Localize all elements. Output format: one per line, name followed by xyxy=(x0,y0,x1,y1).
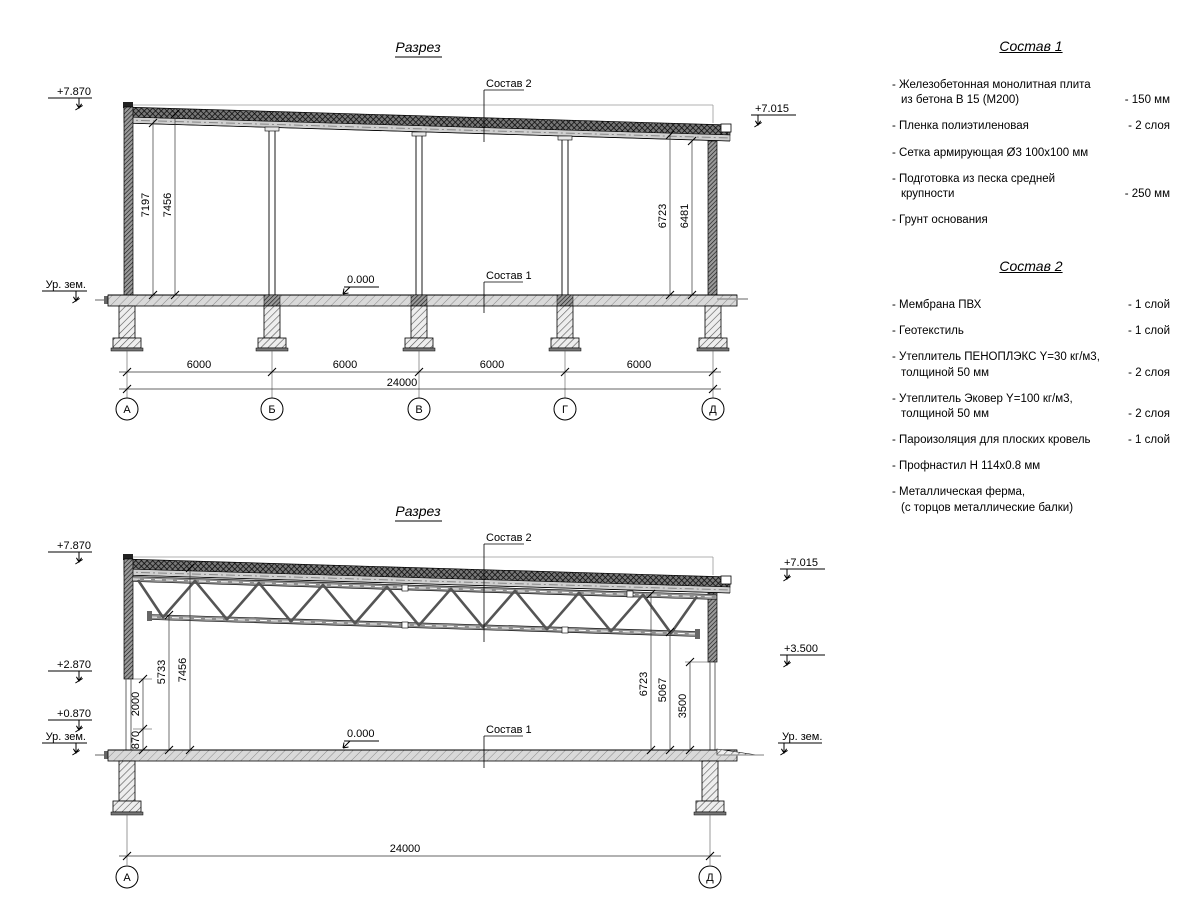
section-1: Разрез xyxy=(42,39,796,420)
total-dim: 24000 xyxy=(390,843,421,855)
callout-sostav1: Состав 1 xyxy=(486,270,532,282)
axis-label: В xyxy=(415,404,422,416)
material-name: - Пароизоляция для плоских кровель xyxy=(892,433,1091,448)
list-item: - Сетка армирующая Ø3 100х100 мм xyxy=(892,146,1170,161)
material-value: - 2 слоя xyxy=(1120,366,1170,381)
material-name: - Грунт основания xyxy=(892,213,988,228)
material-name: - Подготовка из песка средней крупности xyxy=(892,172,1055,202)
ground-level-mark: Ур. зем. xyxy=(46,279,86,291)
list-item: - Геотекстиль - 1 слой xyxy=(892,324,1170,339)
zero-level: 0.000 xyxy=(347,274,375,286)
callout-sostav2: Состав 2 xyxy=(486,78,532,90)
list-item: - Мембрана ПВХ - 1 слой xyxy=(892,298,1170,313)
composition-1-title: Состав 1 xyxy=(892,38,1170,54)
level-mark: +0.870 xyxy=(57,708,91,720)
ground-level-mark: Ур. зем. xyxy=(46,731,86,743)
material-name: - Железобетонная монолитная плита из бет… xyxy=(892,78,1091,108)
material-name: - Профнастил Н 114х0.8 мм xyxy=(892,459,1040,474)
composition-1-list: Состав 1 - Железобетонная монолитная пли… xyxy=(892,38,1170,239)
axis-markers-1: А Б В Г Д xyxy=(116,398,724,420)
level-mark: +7.870 xyxy=(57,540,91,552)
roof-end-cap xyxy=(721,124,731,132)
list-item: - Профнастил Н 114х0.8 мм xyxy=(892,459,1170,474)
callout-sostav2: Состав 2 xyxy=(486,532,532,544)
vdim: 6723 xyxy=(657,204,669,228)
drawing-sheet: Разрез xyxy=(0,0,1200,900)
dim-rows-2: 24000 xyxy=(119,843,721,860)
vdim: 7456 xyxy=(177,658,189,682)
axis-label: Д xyxy=(709,404,717,416)
section1-title: Разрез xyxy=(395,39,441,55)
list-item: - Металлическая ферма, (с торцов металли… xyxy=(892,485,1170,515)
material-name: - Металлическая ферма, (с торцов металли… xyxy=(892,485,1073,515)
vdim: 3500 xyxy=(677,694,689,718)
bay-dim: 6000 xyxy=(480,359,504,371)
material-value: - 2 слоя xyxy=(1120,407,1170,422)
zero-level: 0.000 xyxy=(347,728,375,740)
axis-markers-2: А Д xyxy=(116,866,721,888)
material-value: - 1 слой xyxy=(1120,324,1170,339)
left-wall xyxy=(124,107,133,295)
vertical-dims-2-right: 6723 5067 3500 xyxy=(638,590,710,754)
section-2: Разрез xyxy=(42,503,825,888)
roof-1 xyxy=(123,102,731,141)
foundations-1 xyxy=(111,306,729,398)
material-value: - 1 слой xyxy=(1120,433,1170,448)
list-item: - Подготовка из песка средней крупности … xyxy=(892,172,1170,202)
roof-end-cap xyxy=(721,576,731,584)
section2-title: Разрез xyxy=(395,503,441,519)
level-mark: +3.500 xyxy=(784,643,818,655)
callout-sostav1: Состав 1 xyxy=(486,724,532,736)
vdim: 6481 xyxy=(679,204,691,228)
list-item: - Пароизоляция для плоских кровель - 1 с… xyxy=(892,433,1170,448)
vdim: 870 xyxy=(130,731,142,749)
list-item: - Утеплитель Эковер Y=100 кг/м3, толщино… xyxy=(892,392,1170,422)
total-dim: 24000 xyxy=(387,377,418,389)
material-name: - Пленка полиэтиленовая xyxy=(892,119,1029,134)
list-item: - Железобетонная монолитная плита из бет… xyxy=(892,78,1170,108)
material-name: - Утеплитель Эковер Y=100 кг/м3, толщино… xyxy=(892,392,1073,422)
vdim: 5067 xyxy=(657,678,669,702)
material-name: - Геотекстиль xyxy=(892,324,966,339)
vdim: 5733 xyxy=(156,660,168,684)
composition-2-title: Состав 2 xyxy=(892,258,1170,274)
bay-dim: 6000 xyxy=(333,359,357,371)
material-name: - Мембрана ПВХ xyxy=(892,298,981,313)
vdim: 7197 xyxy=(140,193,152,217)
axis-label: А xyxy=(123,404,131,416)
bay-dim: 6000 xyxy=(187,359,211,371)
axis-label: А xyxy=(123,872,131,884)
ground-level-mark: Ур. зем. xyxy=(782,731,822,743)
material-value: - 2 слоя xyxy=(1120,119,1170,134)
slab-1 xyxy=(95,295,748,306)
list-item: - Утеплитель ПЕНОПЛЭКС Y=30 кг/м3, толщи… xyxy=(892,350,1170,380)
level-mark: +2.870 xyxy=(57,659,91,671)
vdim: 2000 xyxy=(130,692,142,716)
left-wall-upper xyxy=(124,559,133,679)
composition-2-list: Состав 2 - Мембрана ПВХ - 1 слой - Геоте… xyxy=(892,258,1170,527)
material-name: - Сетка армирующая Ø3 100х100 мм xyxy=(892,146,1088,161)
slab-2 xyxy=(95,749,764,761)
level-mark: +7.015 xyxy=(784,557,818,569)
right-wall-upper xyxy=(708,593,717,662)
material-value: - 1 слой xyxy=(1120,298,1170,313)
level-mark: +7.870 xyxy=(57,86,91,98)
bay-dim: 6000 xyxy=(627,359,651,371)
dim-rows-1: 6000 6000 6000 6000 24000 xyxy=(119,359,721,393)
right-wall xyxy=(708,141,717,295)
axis-label: Б xyxy=(268,404,275,416)
list-item: - Пленка полиэтиленовая - 2 слоя xyxy=(892,119,1170,134)
vdim: 7456 xyxy=(162,193,174,217)
axis-label: Г xyxy=(562,404,568,416)
material-value: - 150 мм xyxy=(1117,93,1170,108)
list-item: - Грунт основания xyxy=(892,213,1170,228)
vdim: 6723 xyxy=(638,672,650,696)
axis-label: Д xyxy=(706,872,714,884)
material-name: - Утеплитель ПЕНОПЛЭКС Y=30 кг/м3, толщи… xyxy=(892,350,1100,380)
material-value: - 250 мм xyxy=(1117,187,1170,202)
vertical-dims-1: 7197 7456 6723 6481 xyxy=(140,110,696,299)
level-mark: +7.015 xyxy=(755,103,789,115)
